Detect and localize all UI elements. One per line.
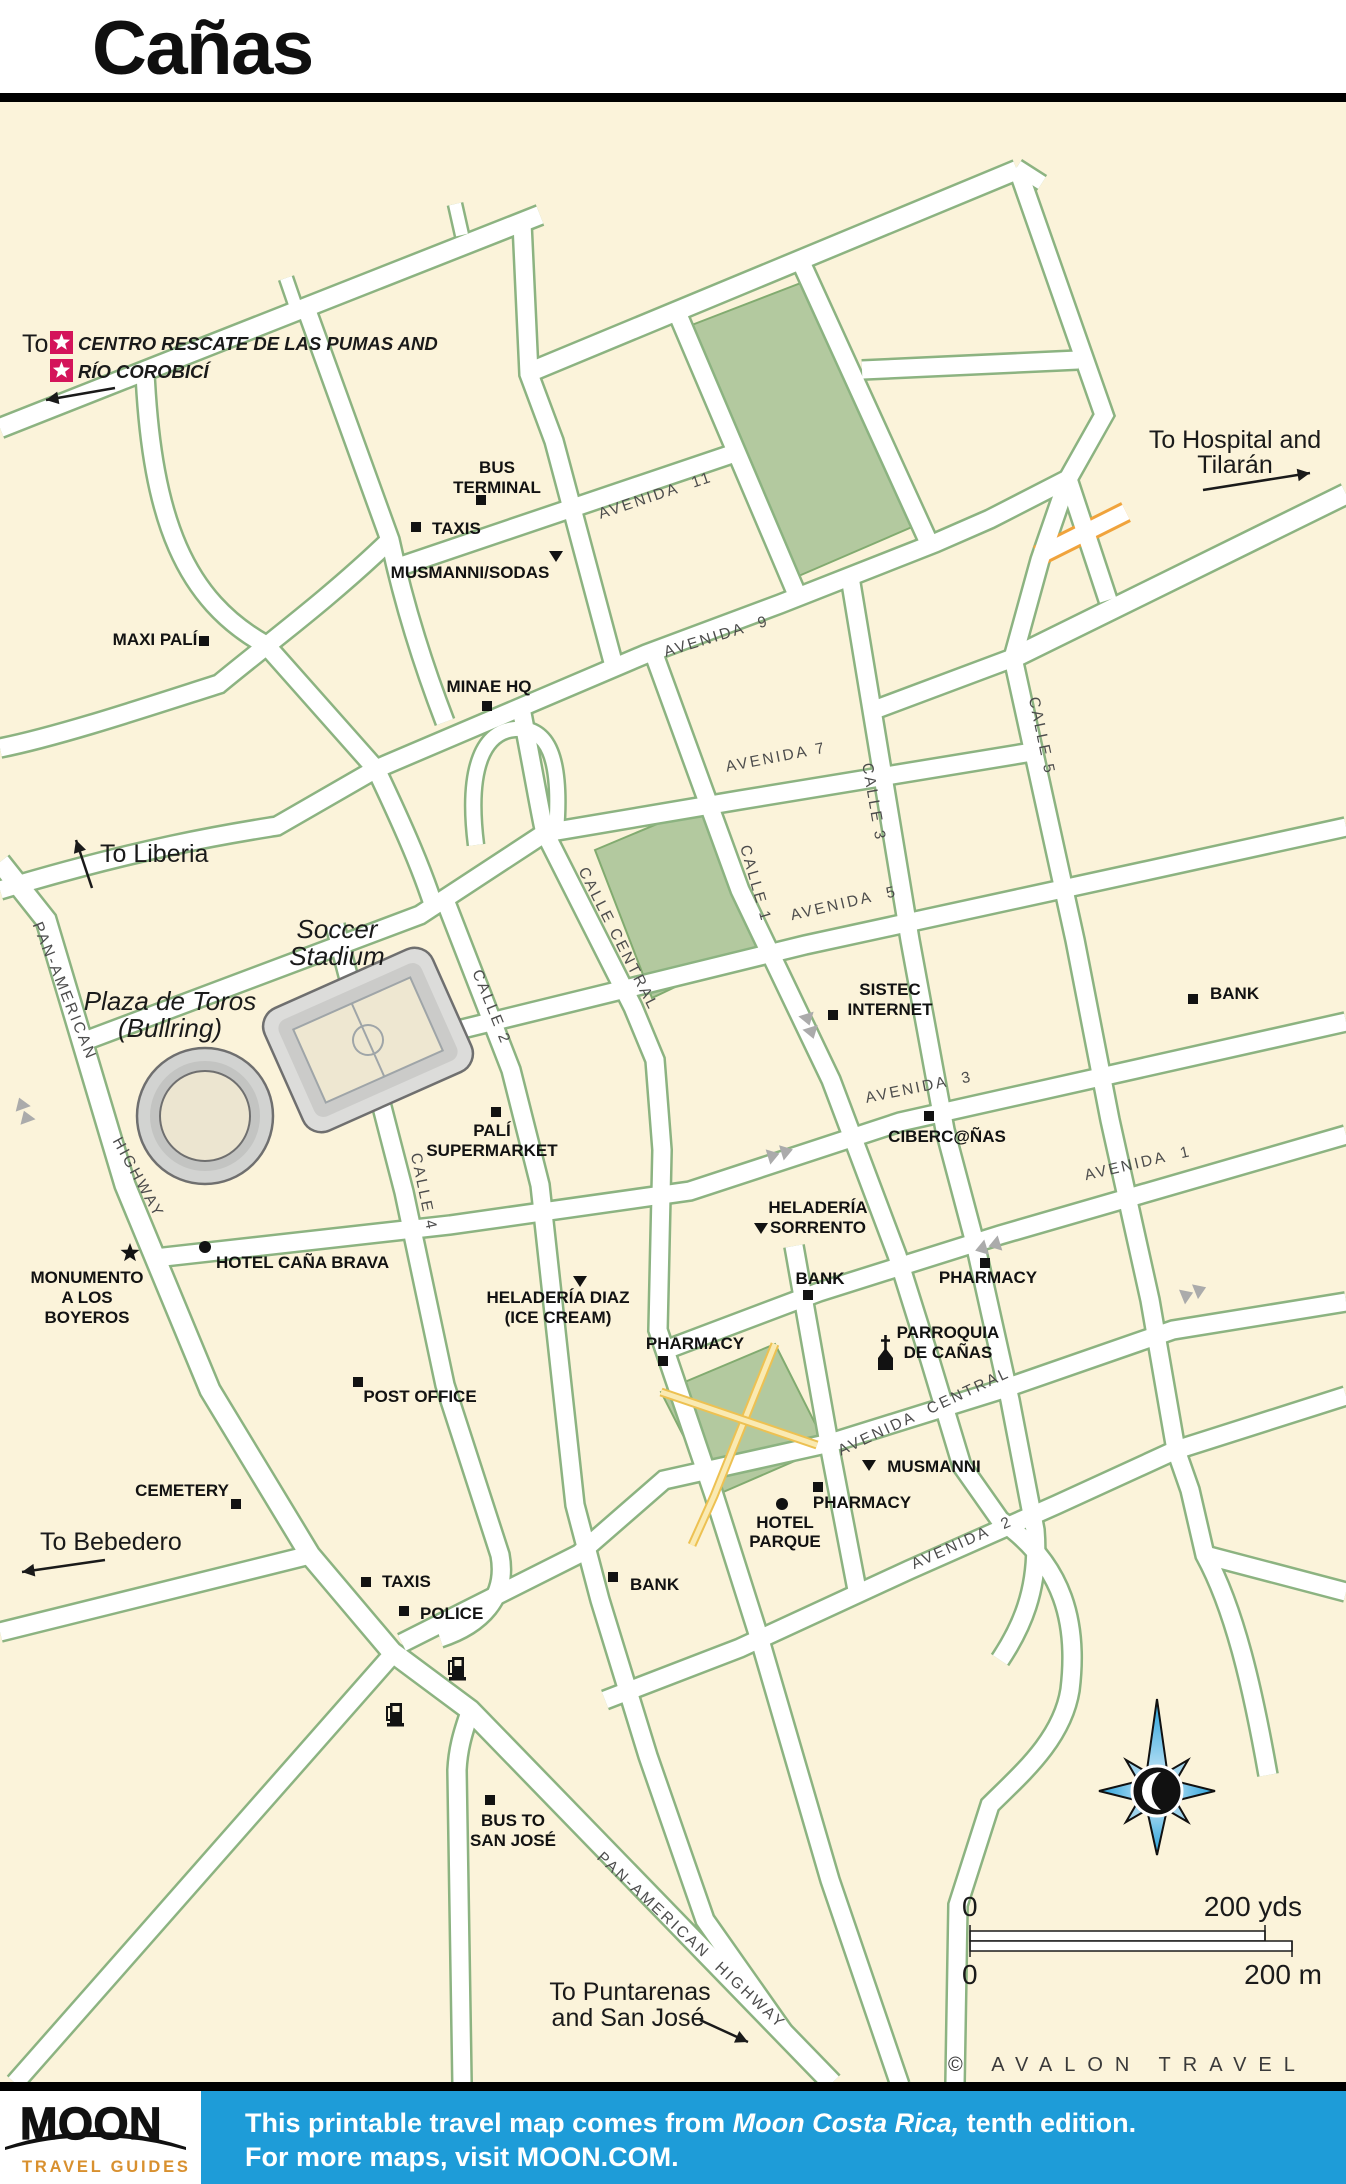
svg-text:Tilarán: Tilarán — [1197, 451, 1273, 479]
svg-text:PHARMACY: PHARMACY — [646, 1334, 745, 1353]
svg-text:HELADERÍA: HELADERÍA — [768, 1198, 867, 1217]
svg-text:PHARMACY: PHARMACY — [813, 1493, 912, 1512]
svg-text:Soccer: Soccer — [297, 914, 379, 944]
svg-text:MUSMANNI: MUSMANNI — [887, 1457, 981, 1476]
svg-text:POLICE: POLICE — [420, 1604, 483, 1623]
svg-text:SAN JOSÉ: SAN JOSÉ — [470, 1831, 556, 1850]
svg-text:SUPERMARKET: SUPERMARKET — [426, 1141, 558, 1160]
svg-text:TERMINAL: TERMINAL — [453, 478, 541, 497]
svg-text:0: 0 — [962, 1891, 978, 1922]
svg-text:PHARMACY: PHARMACY — [939, 1268, 1038, 1287]
svg-text:SISTEC: SISTEC — [859, 980, 920, 999]
svg-text:To Hospital and: To Hospital and — [1149, 426, 1321, 454]
svg-text:CEMETERY: CEMETERY — [135, 1481, 229, 1500]
svg-text:INTERNET: INTERNET — [848, 1000, 934, 1019]
svg-text:To Puntarenas: To Puntarenas — [549, 1978, 710, 2006]
svg-text:To Liberia: To Liberia — [100, 840, 208, 868]
svg-text:To Bebedero: To Bebedero — [40, 1528, 182, 1556]
svg-text:MUSMANNI/SODAS: MUSMANNI/SODAS — [391, 563, 550, 582]
svg-text:PARQUE: PARQUE — [749, 1532, 820, 1551]
svg-text:TAXIS: TAXIS — [382, 1572, 431, 1591]
svg-text:BUS: BUS — [479, 458, 515, 477]
svg-text:MAXI PALÍ: MAXI PALÍ — [113, 630, 199, 649]
svg-text:CIBERC@ÑAS: CIBERC@ÑAS — [888, 1126, 1006, 1146]
svg-text:PARROQUIA: PARROQUIA — [897, 1323, 1000, 1342]
svg-text:For more maps, visit MOON.COM.: For more maps, visit MOON.COM. — [245, 2142, 679, 2172]
svg-text:CENTRO RESCATE DE LAS PUMAS AN: CENTRO RESCATE DE LAS PUMAS AND — [78, 333, 438, 354]
svg-text:A LOS: A LOS — [61, 1288, 112, 1307]
svg-text:0: 0 — [962, 1959, 978, 1990]
svg-text:BANK: BANK — [1210, 984, 1260, 1003]
svg-text:TAXIS: TAXIS — [432, 519, 481, 538]
svg-text:MINAE HQ: MINAE HQ — [447, 677, 532, 696]
svg-text:HOTEL: HOTEL — [756, 1513, 814, 1532]
svg-text:POST OFFICE: POST OFFICE — [363, 1387, 476, 1406]
svg-text:200 yds: 200 yds — [1204, 1891, 1302, 1922]
svg-text:Plaza de Toros: Plaza de Toros — [84, 986, 256, 1016]
svg-text:200 m: 200 m — [1244, 1959, 1322, 1990]
svg-text:BOYEROS: BOYEROS — [44, 1308, 129, 1327]
svg-text:DE CAÑAS: DE CAÑAS — [904, 1342, 993, 1362]
svg-text:RÍO COROBICÍ: RÍO COROBICÍ — [78, 361, 211, 382]
svg-text:This printable travel map come: This printable travel map comes from Moo… — [245, 2108, 1136, 2138]
svg-text:© AVALON TRAVEL: © AVALON TRAVEL — [948, 2054, 1307, 2076]
svg-text:TRAVEL GUIDES: TRAVEL GUIDES — [22, 2158, 191, 2176]
svg-text:To: To — [22, 330, 48, 358]
svg-text:and San José: and San José — [552, 2004, 705, 2032]
svg-text:HOTEL CAÑA BRAVA: HOTEL CAÑA BRAVA — [216, 1252, 389, 1272]
svg-text:BANK: BANK — [795, 1269, 845, 1288]
svg-text:MONUMENTO: MONUMENTO — [30, 1268, 143, 1287]
svg-text:(ICE CREAM): (ICE CREAM) — [505, 1308, 612, 1327]
svg-text:BANK: BANK — [630, 1575, 680, 1594]
svg-text:(Bullring): (Bullring) — [118, 1013, 222, 1043]
svg-text:BUS TO: BUS TO — [481, 1811, 545, 1830]
svg-text:Cañas: Cañas — [92, 6, 313, 91]
svg-text:SORRENTO: SORRENTO — [770, 1218, 866, 1237]
svg-text:HELADERÍA DIAZ: HELADERÍA DIAZ — [487, 1288, 630, 1307]
svg-text:Stadium: Stadium — [289, 941, 384, 971]
svg-text:PALÍ: PALÍ — [473, 1121, 512, 1140]
